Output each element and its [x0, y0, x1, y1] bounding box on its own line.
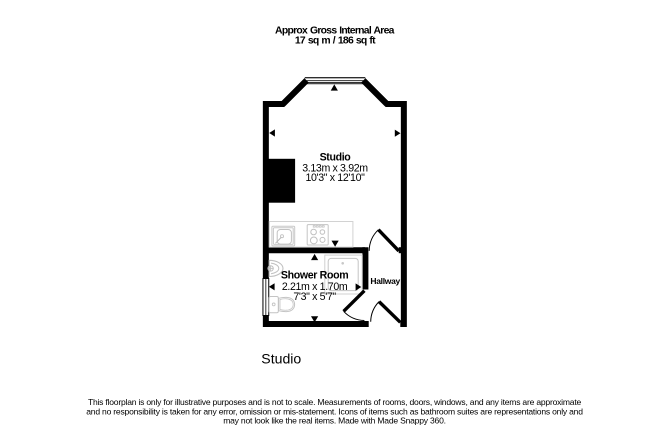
svg-text:Studio: Studio [261, 350, 301, 366]
svg-text:may not look like the real ite: may not look like the real items. Made w… [223, 416, 446, 426]
svg-text:17 sq m / 186 sq ft: 17 sq m / 186 sq ft [295, 36, 376, 47]
svg-text:Shower Room: Shower Room [281, 270, 348, 282]
svg-text:7'3" x 5'7": 7'3" x 5'7" [293, 291, 336, 303]
svg-text:Hallway: Hallway [370, 276, 400, 286]
svg-text:10'3" x 12'10": 10'3" x 12'10" [305, 172, 365, 184]
